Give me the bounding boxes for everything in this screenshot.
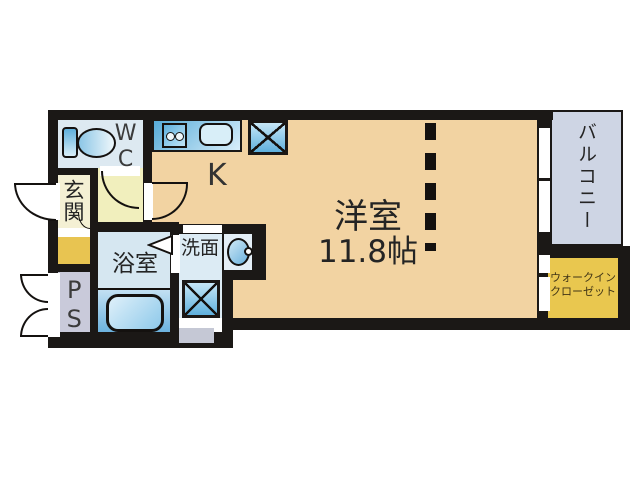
wall-genkan-right: [90, 168, 98, 332]
wall-bottom-main: [226, 318, 630, 330]
ps-door-top-swing-icon: [20, 274, 48, 303]
bath-label: 浴室: [112, 252, 158, 276]
wall-top: [48, 110, 553, 120]
genkan-label: 玄関: [62, 179, 84, 223]
wall-wic-right: [618, 246, 630, 330]
genkan-step: [58, 228, 90, 237]
wall-genkan-gold-sep: [58, 264, 90, 272]
wic-label-line1: ウォークイン: [549, 271, 617, 285]
wall-wash-right: [222, 278, 233, 348]
washing-machine-space-icon: [182, 280, 220, 318]
window-1: [539, 128, 550, 178]
refrigerator-space-icon: [248, 120, 288, 155]
wall-hall-bottom: [98, 222, 179, 232]
kitchen-sink-icon: [199, 123, 233, 146]
toilet-tank-icon: [62, 127, 78, 158]
toilet-bowl-icon: [77, 128, 116, 158]
window-2: [539, 181, 550, 232]
ps-label: PS: [61, 276, 86, 334]
washroom-doorway: [183, 225, 222, 233]
balcony-label: バルコニー: [575, 122, 595, 232]
main-room-size: 11.8帖: [292, 236, 444, 269]
washroom-label: 洗面: [181, 239, 219, 259]
ps-doorway: [46, 273, 60, 337]
shoe-cabinet: [58, 237, 90, 264]
kitchen-label: K: [207, 160, 227, 192]
floorplan-page: WC 玄関 PS 浴室 洗面 K 洋室 11.8帖 バルコニー ウォークイン ク…: [0, 0, 640, 480]
wc-label: WC: [114, 121, 137, 173]
main-room-label: 洋室 11.8帖: [292, 200, 444, 268]
ps-door-bottom-swing-icon: [20, 308, 48, 337]
wic-label: ウォークイン クローゼット: [549, 271, 617, 299]
bathtub-icon: [106, 294, 164, 332]
gray-step-block: [179, 328, 214, 343]
main-room-name: 洋室: [292, 200, 444, 236]
wic-label-line2: クローゼット: [549, 285, 617, 299]
kitchen-stove-icon: [162, 123, 187, 148]
stove-burner-icon: [175, 132, 184, 141]
washbasin-faucet-icon: [244, 247, 253, 256]
stove-burner-icon: [166, 132, 175, 141]
entrance-door-swing-icon: [14, 183, 56, 221]
kitchen-door-leaf: [152, 182, 188, 184]
